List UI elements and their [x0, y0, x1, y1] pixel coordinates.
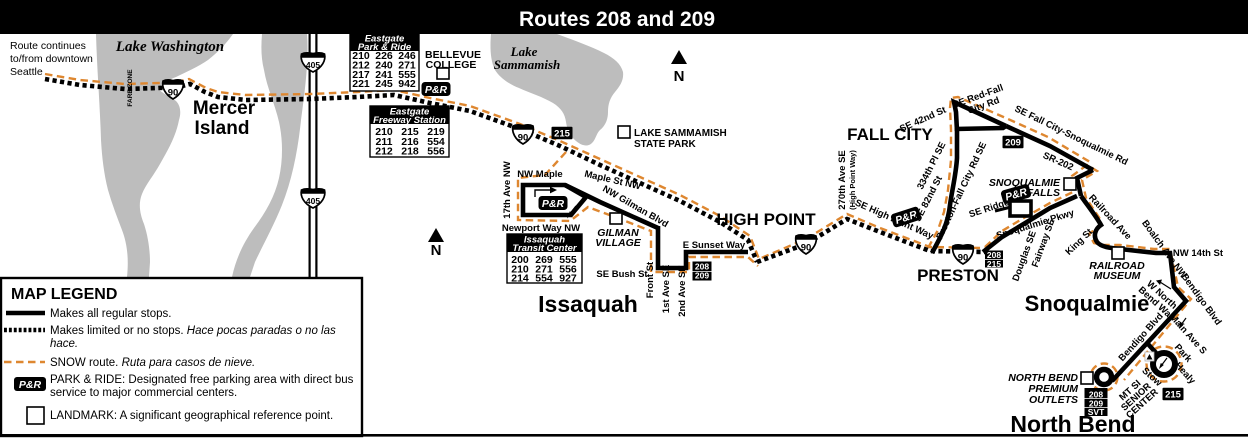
- svg-text:SNOW route. Ruta para casos de: SNOW route. Ruta para casos de nieve.: [50, 357, 255, 369]
- svg-text:209: 209: [695, 271, 709, 281]
- svg-text:556: 556: [427, 146, 445, 158]
- svg-text:215: 215: [1165, 389, 1182, 400]
- svg-text:270th Ave SE: 270th Ave SE: [837, 150, 848, 210]
- svg-text:NW Maple: NW Maple: [517, 169, 562, 180]
- svg-text:PARK & RIDE: Designated free p: PARK & RIDE: Designated free parking are…: [50, 374, 354, 386]
- svg-text:Transit Center: Transit Center: [512, 243, 578, 254]
- svg-text:221: 221: [352, 78, 370, 90]
- svg-text:LAKE SAMMAMISH: LAKE SAMMAMISH: [634, 128, 727, 139]
- svg-text:Front St: Front St: [645, 261, 656, 298]
- svg-text:Sammamish: Sammamish: [494, 57, 560, 72]
- svg-text:Mercer: Mercer: [193, 98, 256, 119]
- svg-text:PRESTON: PRESTON: [917, 266, 999, 285]
- svg-text:17th Ave NW: 17th Ave NW: [502, 161, 513, 218]
- svg-text:214: 214: [511, 273, 529, 285]
- svg-text:554: 554: [535, 273, 553, 285]
- svg-text:2nd Ave SE: 2nd Ave SE: [677, 265, 688, 317]
- svg-text:OUTLETS: OUTLETS: [1029, 394, 1078, 406]
- svg-text:927: 927: [559, 273, 577, 285]
- svg-text:COLLEGE: COLLEGE: [426, 59, 477, 71]
- svg-text:MAP LEGEND: MAP LEGEND: [11, 286, 117, 303]
- svg-text:215: 215: [554, 128, 571, 139]
- svg-text:Routes 208 and 209: Routes 208 and 209: [519, 8, 715, 31]
- svg-text:Seattle: Seattle: [10, 66, 43, 78]
- svg-text:Island: Island: [195, 118, 250, 139]
- svg-text:Lake Washington: Lake Washington: [115, 39, 224, 55]
- svg-text:1st Ave SE: 1st Ave SE: [661, 265, 672, 313]
- svg-text:MUSEUM: MUSEUM: [1094, 270, 1141, 282]
- svg-text:VILLAGE: VILLAGE: [595, 237, 641, 249]
- svg-text:FALL CITY: FALL CITY: [847, 125, 933, 144]
- svg-text:218: 218: [401, 146, 419, 158]
- svg-text:N: N: [674, 68, 685, 85]
- svg-text:Snoqualmie: Snoqualmie: [1025, 291, 1150, 316]
- svg-text:P&R: P&R: [19, 379, 42, 391]
- svg-text:NW 14th St: NW 14th St: [1173, 248, 1224, 259]
- svg-text:Issaquah: Issaquah: [538, 291, 638, 317]
- svg-text:215: 215: [987, 259, 1001, 269]
- svg-text:Makes limited or no stops. Hac: Makes limited or no stops. Hace pocas pa…: [50, 325, 336, 337]
- svg-text:North Bend: North Bend: [1010, 411, 1135, 437]
- svg-text:212: 212: [375, 146, 393, 158]
- svg-text:Route continues: Route continues: [10, 40, 86, 52]
- svg-text:209: 209: [1005, 137, 1021, 148]
- svg-text:to/from downtown: to/from downtown: [10, 53, 93, 65]
- svg-text:Freeway Station: Freeway Station: [373, 115, 446, 126]
- svg-text:E Sunset Way: E Sunset Way: [683, 240, 746, 251]
- svg-text:hace.: hace.: [50, 338, 78, 350]
- svg-text:N: N: [431, 242, 442, 259]
- svg-text:service to major commercial ce: service to major commercial centers.: [50, 387, 237, 399]
- svg-text:SE Bush St: SE Bush St: [596, 269, 648, 280]
- svg-text:Newport Way NW: Newport Way NW: [502, 223, 580, 234]
- svg-text:FARE ZONE: FARE ZONE: [127, 69, 134, 107]
- svg-text:HIGH POINT: HIGH POINT: [716, 210, 816, 229]
- svg-text:942: 942: [398, 78, 416, 90]
- svg-text:STATE PARK: STATE PARK: [634, 139, 696, 150]
- svg-text:Makes all regular stops.: Makes all regular stops.: [50, 308, 171, 320]
- svg-text:FALLS: FALLS: [1027, 187, 1060, 199]
- svg-text:245: 245: [375, 78, 393, 90]
- svg-text:LANDMARK: A significant geogra: LANDMARK: A significant geographical ref…: [50, 410, 333, 422]
